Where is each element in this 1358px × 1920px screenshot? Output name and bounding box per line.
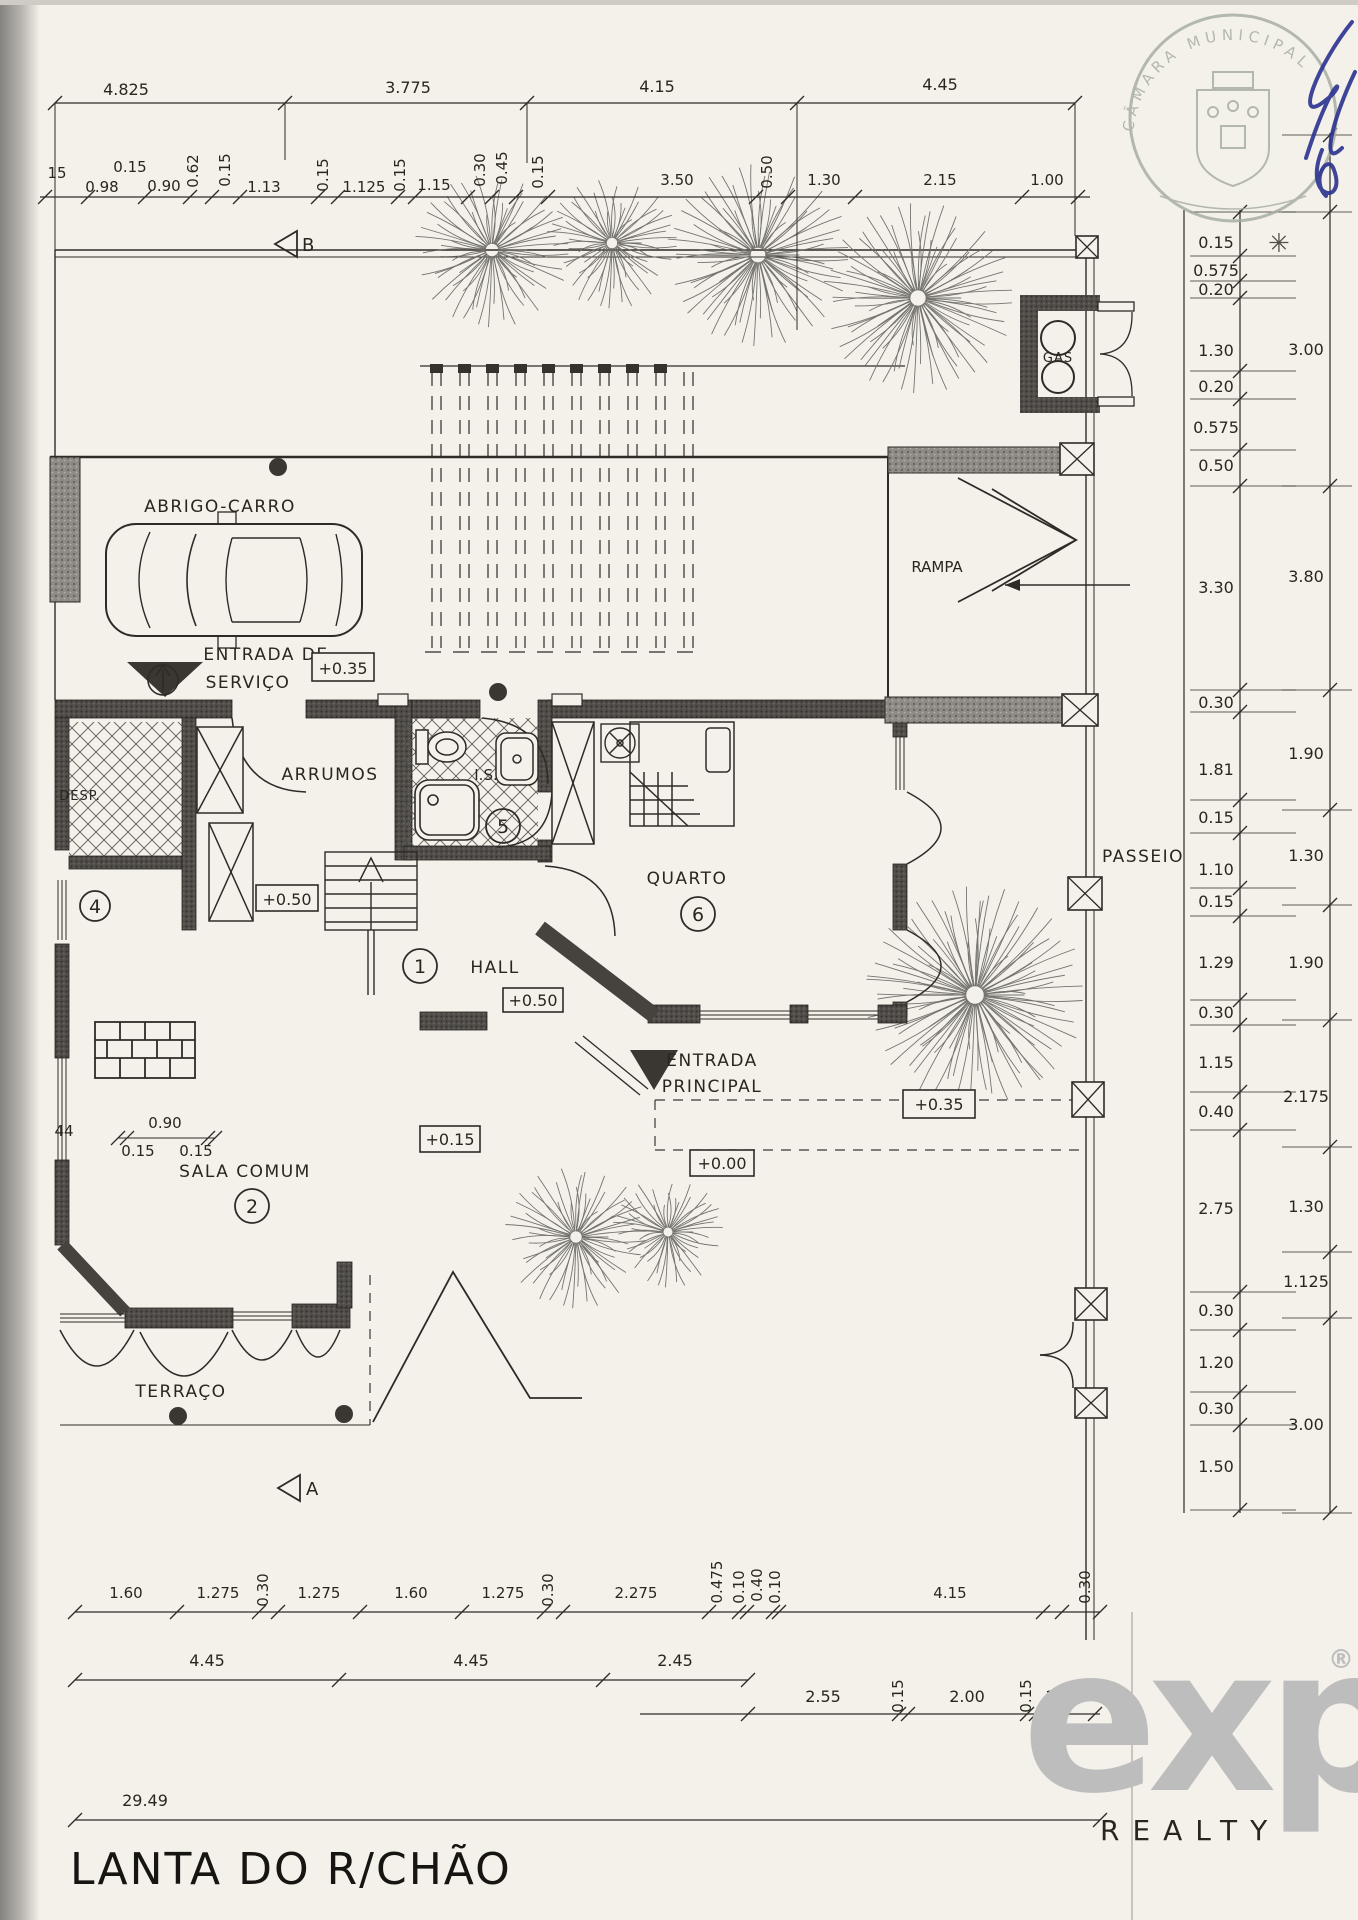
- dimension-label: 0.30: [1198, 1399, 1234, 1418]
- floor-plan-drawing: 4.8253.7754.154.45150.150.980.901.131.12…: [0, 0, 1358, 1920]
- dimension-label: 4.45: [189, 1651, 225, 1670]
- dimension-label: 4.45: [922, 75, 958, 94]
- label-hall: HALL: [470, 958, 519, 978]
- dimension-label: 0.50: [758, 155, 776, 188]
- room-number-wc: 5: [497, 816, 509, 838]
- dimension-label: 1.15: [1198, 1053, 1234, 1072]
- dimension-label: 0.15: [1198, 233, 1234, 252]
- label-living: SALA COMUM: [179, 1162, 311, 1182]
- label-main-entry-2: PRINCIPAL: [662, 1077, 762, 1097]
- dimension-label: 0.10: [766, 1570, 784, 1603]
- stamp-asterisk-icon: ✳: [1268, 229, 1290, 259]
- dimension-label: 1.30: [1288, 1197, 1324, 1216]
- elev-entry: +0.00: [697, 1154, 746, 1173]
- dimension-label: 0.20: [1198, 377, 1234, 396]
- label-service-entry-2: SERVIÇO: [206, 673, 291, 693]
- label-storage: ARRUMOS: [281, 765, 378, 785]
- wall-vent: [378, 694, 408, 706]
- dimension-label: 0.30: [539, 1573, 557, 1606]
- dimension-label: 0.575: [1193, 418, 1239, 437]
- scan-left-shadow: [0, 0, 40, 1920]
- dimension-label: 0.50: [1198, 456, 1234, 475]
- dimension-label: 0.10: [730, 1570, 748, 1603]
- label-main-entry-1: ENTRADA: [666, 1051, 758, 1071]
- pergola-dashed-grid: [425, 364, 694, 652]
- dimension-label: 0.62: [184, 154, 202, 187]
- label-ramp: RAMPA: [911, 558, 963, 576]
- label-sidewalk: PASSEIO: [1102, 847, 1184, 867]
- bathtub-icon: [415, 780, 479, 840]
- elev-hall: +0.50: [508, 991, 557, 1010]
- storage-closets: [197, 727, 253, 921]
- dimension-label: 0.15: [1198, 808, 1234, 827]
- dimension-label: 1.90: [1288, 744, 1324, 763]
- dimension-label: 2.275: [615, 1584, 658, 1602]
- column-dot: [335, 1405, 353, 1423]
- dimension-label: 1.275: [298, 1584, 341, 1602]
- dimension-label: 1.90: [1288, 953, 1324, 972]
- dimension-label: 2.55: [805, 1687, 841, 1706]
- dimension-label: 1.20: [1198, 1353, 1234, 1372]
- dimension-label: 3.30: [1198, 578, 1234, 597]
- dimension-label: 1.125: [343, 178, 386, 196]
- dimension-label: 1.30: [807, 171, 840, 189]
- dimension-label: 0.475: [708, 1561, 726, 1604]
- exp-logo-reg: ®: [1328, 1645, 1354, 1675]
- elevation-markers: [256, 653, 975, 1176]
- dimension-label: 0.30: [1076, 1570, 1094, 1603]
- dimension-label: 1.50: [1198, 1457, 1234, 1476]
- dimension-label: 0.30: [1198, 693, 1234, 712]
- dimension-label: 1.29: [1198, 953, 1234, 972]
- stamp-crest-icon: [1160, 72, 1306, 209]
- room-number-bedroom: 6: [692, 904, 704, 926]
- dimension-label: 4.45: [453, 1651, 489, 1670]
- gas-closet: [1020, 295, 1134, 413]
- svg-text:CÂMARA MUNICIPAL: CÂMARA MUNICIPAL: [1119, 26, 1315, 133]
- dimension-label: 0.15: [121, 1142, 154, 1160]
- label-terrace: TERRAÇO: [134, 1382, 226, 1402]
- exp-logo-subtitle: REALTY: [1100, 1814, 1280, 1847]
- dimension-label: 0.90: [147, 177, 180, 195]
- staircase: [325, 852, 417, 995]
- column-dot: [169, 1407, 187, 1425]
- entrance-steps: [575, 1036, 648, 1095]
- elev-living: +0.15: [425, 1130, 474, 1149]
- dimension-label: 2.175: [1283, 1087, 1329, 1106]
- dimension-label: 0.15: [529, 155, 547, 188]
- municipal-stamp: CÂMARA MUNICIPAL ✳: [1119, 15, 1336, 259]
- tree-icon: [613, 1184, 723, 1287]
- dimension-label: 0.40: [748, 1568, 766, 1601]
- dimension-label: 3.80: [1288, 567, 1324, 586]
- label-bedroom: QUARTO: [647, 869, 728, 889]
- dimension-label: 0.15: [113, 158, 146, 176]
- dimension-label: 0.15: [179, 1142, 212, 1160]
- label-wc: I.S.: [474, 766, 497, 784]
- tree-icon: [668, 164, 848, 346]
- dimension-label: 15: [47, 164, 66, 182]
- dimension-label: 0.15: [314, 158, 332, 191]
- column-dot: [269, 458, 287, 476]
- ramp-area: [885, 447, 1130, 723]
- room-number-pantry: 4: [89, 896, 101, 918]
- section-marker-A: A: [278, 1475, 319, 1501]
- label-service-entry-1: ENTRADA DE: [203, 645, 328, 665]
- dimension-lines: 4.8253.7754.154.45150.150.980.901.131.12…: [38, 75, 1352, 1827]
- room-number-hall: 1: [414, 956, 426, 978]
- label-carport: ABRIGO-CARRO: [144, 497, 296, 517]
- dimension-label: 3.00: [1288, 340, 1324, 359]
- dimension-label: 3.50: [660, 171, 693, 189]
- dimension-label: 0.30: [254, 1573, 272, 1606]
- dimension-label: 2.00: [949, 1687, 985, 1706]
- dimension-label: 2.75: [1198, 1199, 1234, 1218]
- dimension-label: 1.275: [197, 1584, 240, 1602]
- dimension-label: 4.15: [933, 1584, 966, 1602]
- dimension-label: 0.98: [85, 178, 118, 196]
- dimension-label: 1.81: [1198, 760, 1234, 779]
- dimension-label: 0.15: [1198, 892, 1234, 911]
- dimension-label: 0.15: [889, 1679, 907, 1712]
- section-marker-B: B: [275, 231, 314, 257]
- column-markers: [1060, 236, 1107, 1418]
- toilet-icon: [416, 730, 466, 764]
- dimension-label: 1.30: [1198, 341, 1234, 360]
- ceiling-fan-icon: [601, 724, 639, 762]
- dimension-label: 0.15: [391, 158, 409, 191]
- dimension-label: 3.00: [1288, 1415, 1324, 1434]
- dimension-label: 1.30: [1288, 846, 1324, 865]
- dimension-label: 0.30: [1198, 1301, 1234, 1320]
- dimension-label: 1.13: [247, 178, 280, 196]
- fireplace-icon: [95, 1022, 195, 1078]
- scan-top-edge: [0, 0, 1358, 5]
- sink-icon: [496, 733, 538, 785]
- dimension-label: 1.10: [1198, 860, 1234, 879]
- exp-logo-text: exp: [1022, 1605, 1358, 1838]
- label-pantry: DESP.: [59, 789, 100, 804]
- dimension-label: 1.00: [1030, 171, 1063, 189]
- elev-stairs: +0.50: [262, 890, 311, 909]
- dimension-label: 2.15: [923, 171, 956, 189]
- column-dot: [489, 683, 507, 701]
- dimension-label: 2.45: [657, 1651, 693, 1670]
- section-letter-b: B: [302, 235, 314, 256]
- stamp-text: CÂMARA MUNICIPAL: [1119, 26, 1315, 133]
- room-number-living: 2: [246, 1196, 258, 1218]
- tree-icon: [547, 180, 676, 308]
- dimension-label: 1.60: [394, 1584, 427, 1602]
- dimension-label: 0.575: [1193, 261, 1239, 280]
- dimension-label: 1.15: [417, 176, 450, 194]
- dimension-label: 1.60: [109, 1584, 142, 1602]
- dimension-label: 0.30: [471, 153, 489, 186]
- dimension-label: 0.15: [216, 153, 234, 186]
- dimension-label: 3.775: [385, 78, 431, 97]
- dimension-label: 0.20: [1198, 280, 1234, 299]
- dimension-label: 0.30: [1198, 1003, 1234, 1022]
- car-top-view: [106, 512, 362, 648]
- bed-icon: [630, 722, 734, 826]
- dimension-label: 4.15: [639, 77, 675, 96]
- dimension-label: 4.825: [103, 80, 149, 99]
- dimension-label: 0.40: [1198, 1102, 1234, 1121]
- tree-icon: [416, 176, 569, 327]
- scanned-floor-plan-page: 4.8253.7754.154.45150.150.980.901.131.12…: [0, 0, 1358, 1920]
- section-letter-a: A: [306, 1479, 319, 1500]
- tree-icon: [505, 1169, 646, 1309]
- exp-realty-watermark: exp ® REALTY: [1022, 1605, 1358, 1847]
- room-number-circles: [80, 809, 715, 1223]
- dimension-label: 0.90: [148, 1114, 181, 1132]
- wall-vent: [552, 694, 582, 706]
- label-gas: GAS: [1043, 351, 1073, 366]
- dimension-label: 29.49: [122, 1791, 168, 1810]
- driveway-lines: [373, 1272, 582, 1422]
- sheet-title: LANTA DO R/CHÃO: [70, 1843, 512, 1895]
- ramp-chevrons: [958, 478, 1130, 602]
- tree-icon: [824, 203, 1012, 393]
- dimension-label: 1.275: [482, 1584, 525, 1602]
- dimension-label: 1.125: [1283, 1272, 1329, 1291]
- elev-service: +0.35: [318, 659, 367, 678]
- dimension-label: 0.45: [493, 151, 511, 184]
- dimension-label: 44: [54, 1122, 73, 1140]
- elev-passeio: +0.35: [914, 1095, 963, 1114]
- wardrobe-icon: [552, 722, 594, 844]
- terrace-awnings: [60, 1330, 370, 1425]
